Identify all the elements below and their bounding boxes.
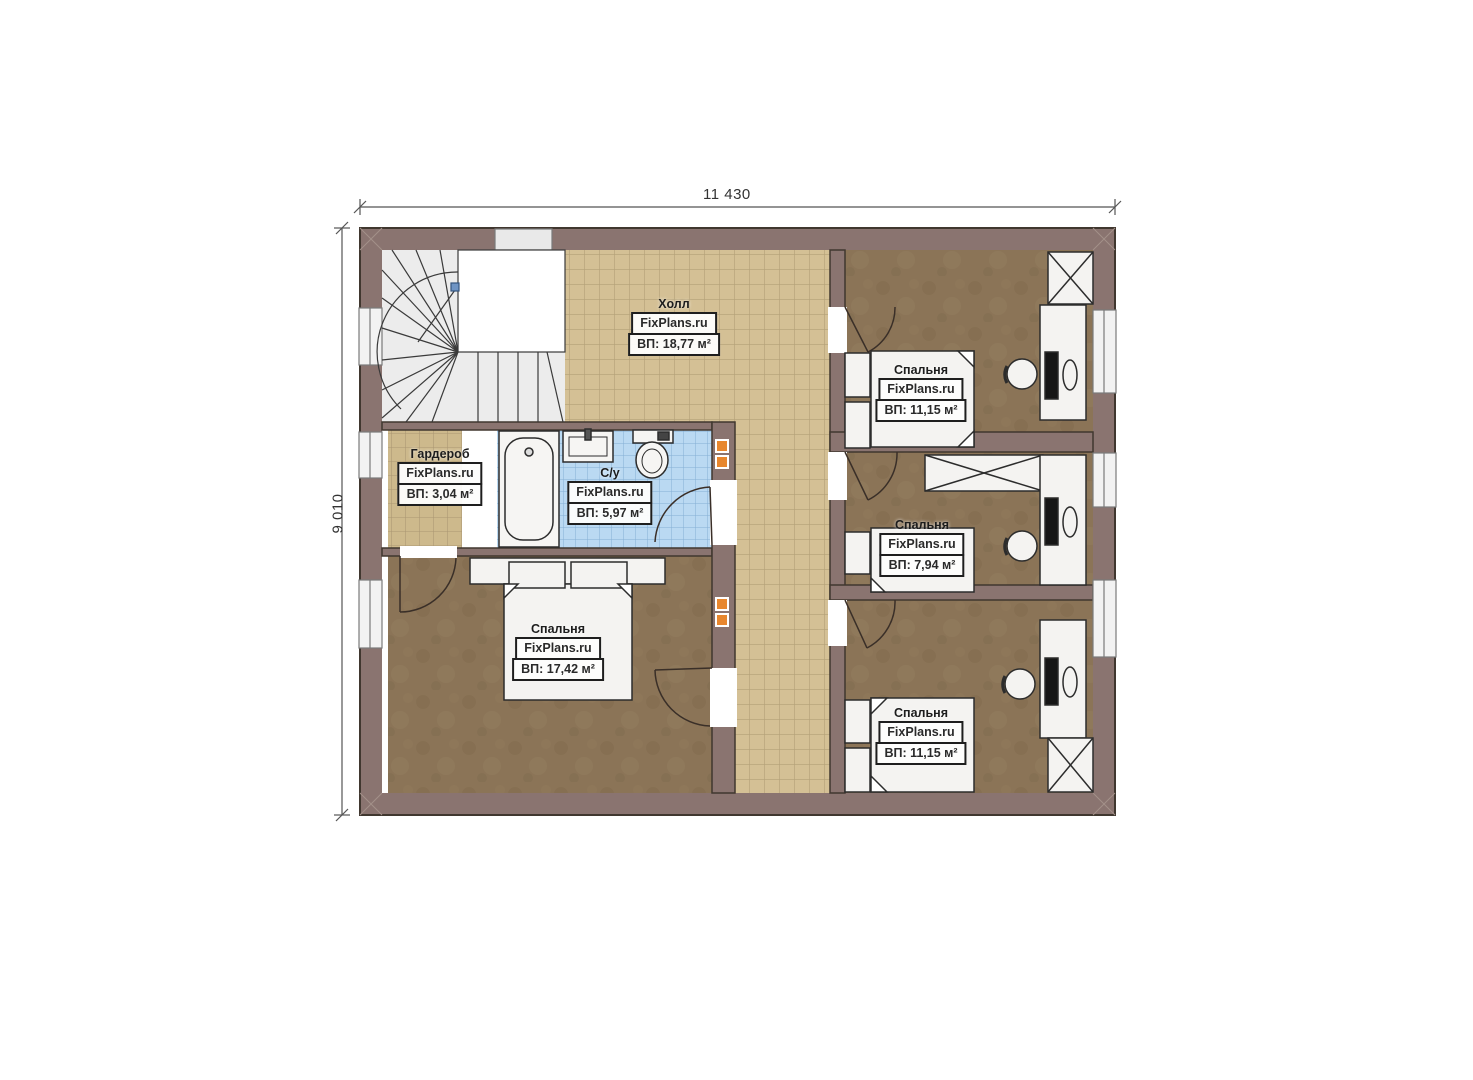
room-label-bedroom-top-right: Спальня FixPlans.ru ВП: 11,15 м² bbox=[875, 363, 966, 422]
floor-plan-drawing bbox=[0, 0, 1473, 1080]
bathtub-icon bbox=[499, 431, 559, 547]
watermark-box: FixPlans.ru bbox=[515, 637, 600, 660]
wardrobe-mid-right-icon bbox=[925, 455, 1043, 491]
floor-plan-page: 11 430 9 010 Холл FixPlans.ru ВП: 18,77 … bbox=[0, 0, 1473, 1080]
dimension-top-label: 11 430 bbox=[703, 186, 751, 203]
room-label-hall: Холл FixPlans.ru ВП: 18,77 м² bbox=[628, 297, 720, 356]
room-name: Спальня bbox=[894, 363, 948, 377]
stair-void bbox=[458, 250, 565, 352]
watermark-box: FixPlans.ru bbox=[397, 462, 482, 485]
room-name: Спальня bbox=[894, 706, 948, 720]
chair-top-right-icon bbox=[1007, 359, 1037, 389]
room-area-box: ВП: 5,97 м² bbox=[568, 502, 653, 525]
top-wall-niche bbox=[495, 229, 552, 250]
room-area-box: ВП: 7,94 м² bbox=[880, 554, 965, 577]
dimension-left-label: 9 010 bbox=[330, 493, 347, 533]
chair-bottom-right-icon bbox=[1005, 669, 1035, 699]
stair-direction-marker bbox=[451, 283, 459, 291]
watermark-box: FixPlans.ru bbox=[878, 378, 963, 401]
watermark-box: FixPlans.ru bbox=[878, 721, 963, 744]
room-name: С/у bbox=[600, 466, 619, 480]
watermark-box: FixPlans.ru bbox=[879, 533, 964, 556]
room-area-box: ВП: 11,15 м² bbox=[875, 742, 966, 765]
room-area-box: ВП: 3,04 м² bbox=[398, 483, 483, 506]
room-area-box: ВП: 11,15 м² bbox=[875, 399, 966, 422]
sink-icon bbox=[563, 429, 613, 462]
room-label-bathroom: С/у FixPlans.ru ВП: 5,97 м² bbox=[567, 466, 652, 525]
room-name: Спальня bbox=[531, 622, 585, 636]
room-area-box: ВП: 18,77 м² bbox=[628, 333, 720, 356]
corridor-floor bbox=[735, 422, 830, 793]
wardrobe-top-right-icon bbox=[1048, 252, 1093, 304]
watermark-box: FixPlans.ru bbox=[631, 312, 716, 335]
room-label-bedroom-bottom-right: Спальня FixPlans.ru ВП: 11,15 м² bbox=[875, 706, 966, 765]
room-label-bedroom-mid-right: Спальня FixPlans.ru ВП: 7,94 м² bbox=[879, 518, 964, 577]
room-name: Холл bbox=[658, 297, 689, 311]
watermark-box: FixPlans.ru bbox=[567, 481, 652, 504]
room-label-bedroom-master: Спальня FixPlans.ru ВП: 17,42 м² bbox=[512, 622, 604, 681]
room-label-wardrobe: Гардероб FixPlans.ru ВП: 3,04 м² bbox=[397, 447, 482, 506]
wardrobe-bottom-right-icon bbox=[1048, 738, 1093, 792]
chair-mid-right-icon bbox=[1007, 531, 1037, 561]
room-name: Гардероб bbox=[410, 447, 469, 461]
room-name: Спальня bbox=[895, 518, 949, 532]
room-area-box: ВП: 17,42 м² bbox=[512, 658, 604, 681]
